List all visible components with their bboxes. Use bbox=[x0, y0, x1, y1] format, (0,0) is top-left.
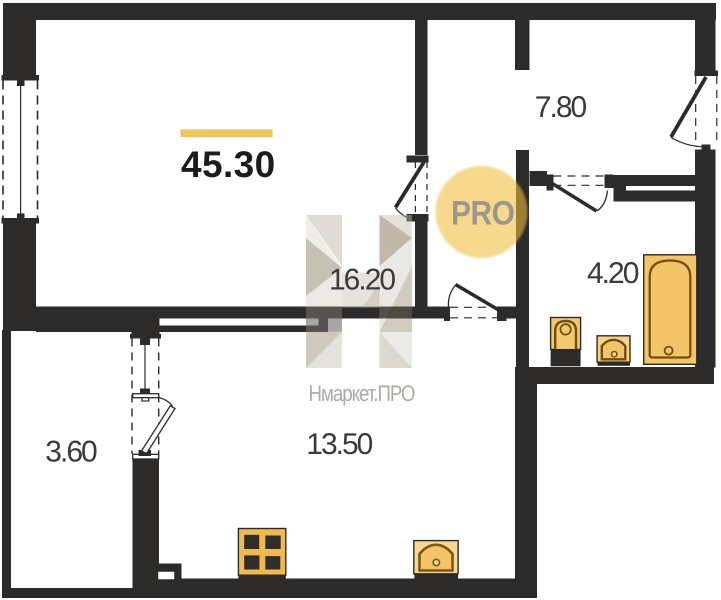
svg-text:4.20: 4.20 bbox=[587, 257, 639, 290]
svg-text:3.60: 3.60 bbox=[45, 436, 97, 469]
svg-text:PRO: PRO bbox=[451, 195, 515, 233]
svg-text:13.50: 13.50 bbox=[306, 428, 372, 461]
svg-text:16.20: 16.20 bbox=[329, 264, 395, 297]
svg-text:7.80: 7.80 bbox=[535, 91, 587, 124]
svg-text:45.30: 45.30 bbox=[181, 144, 276, 185]
svg-text:Нмаркет.ПРО: Нмаркет.ПРО bbox=[309, 381, 416, 406]
